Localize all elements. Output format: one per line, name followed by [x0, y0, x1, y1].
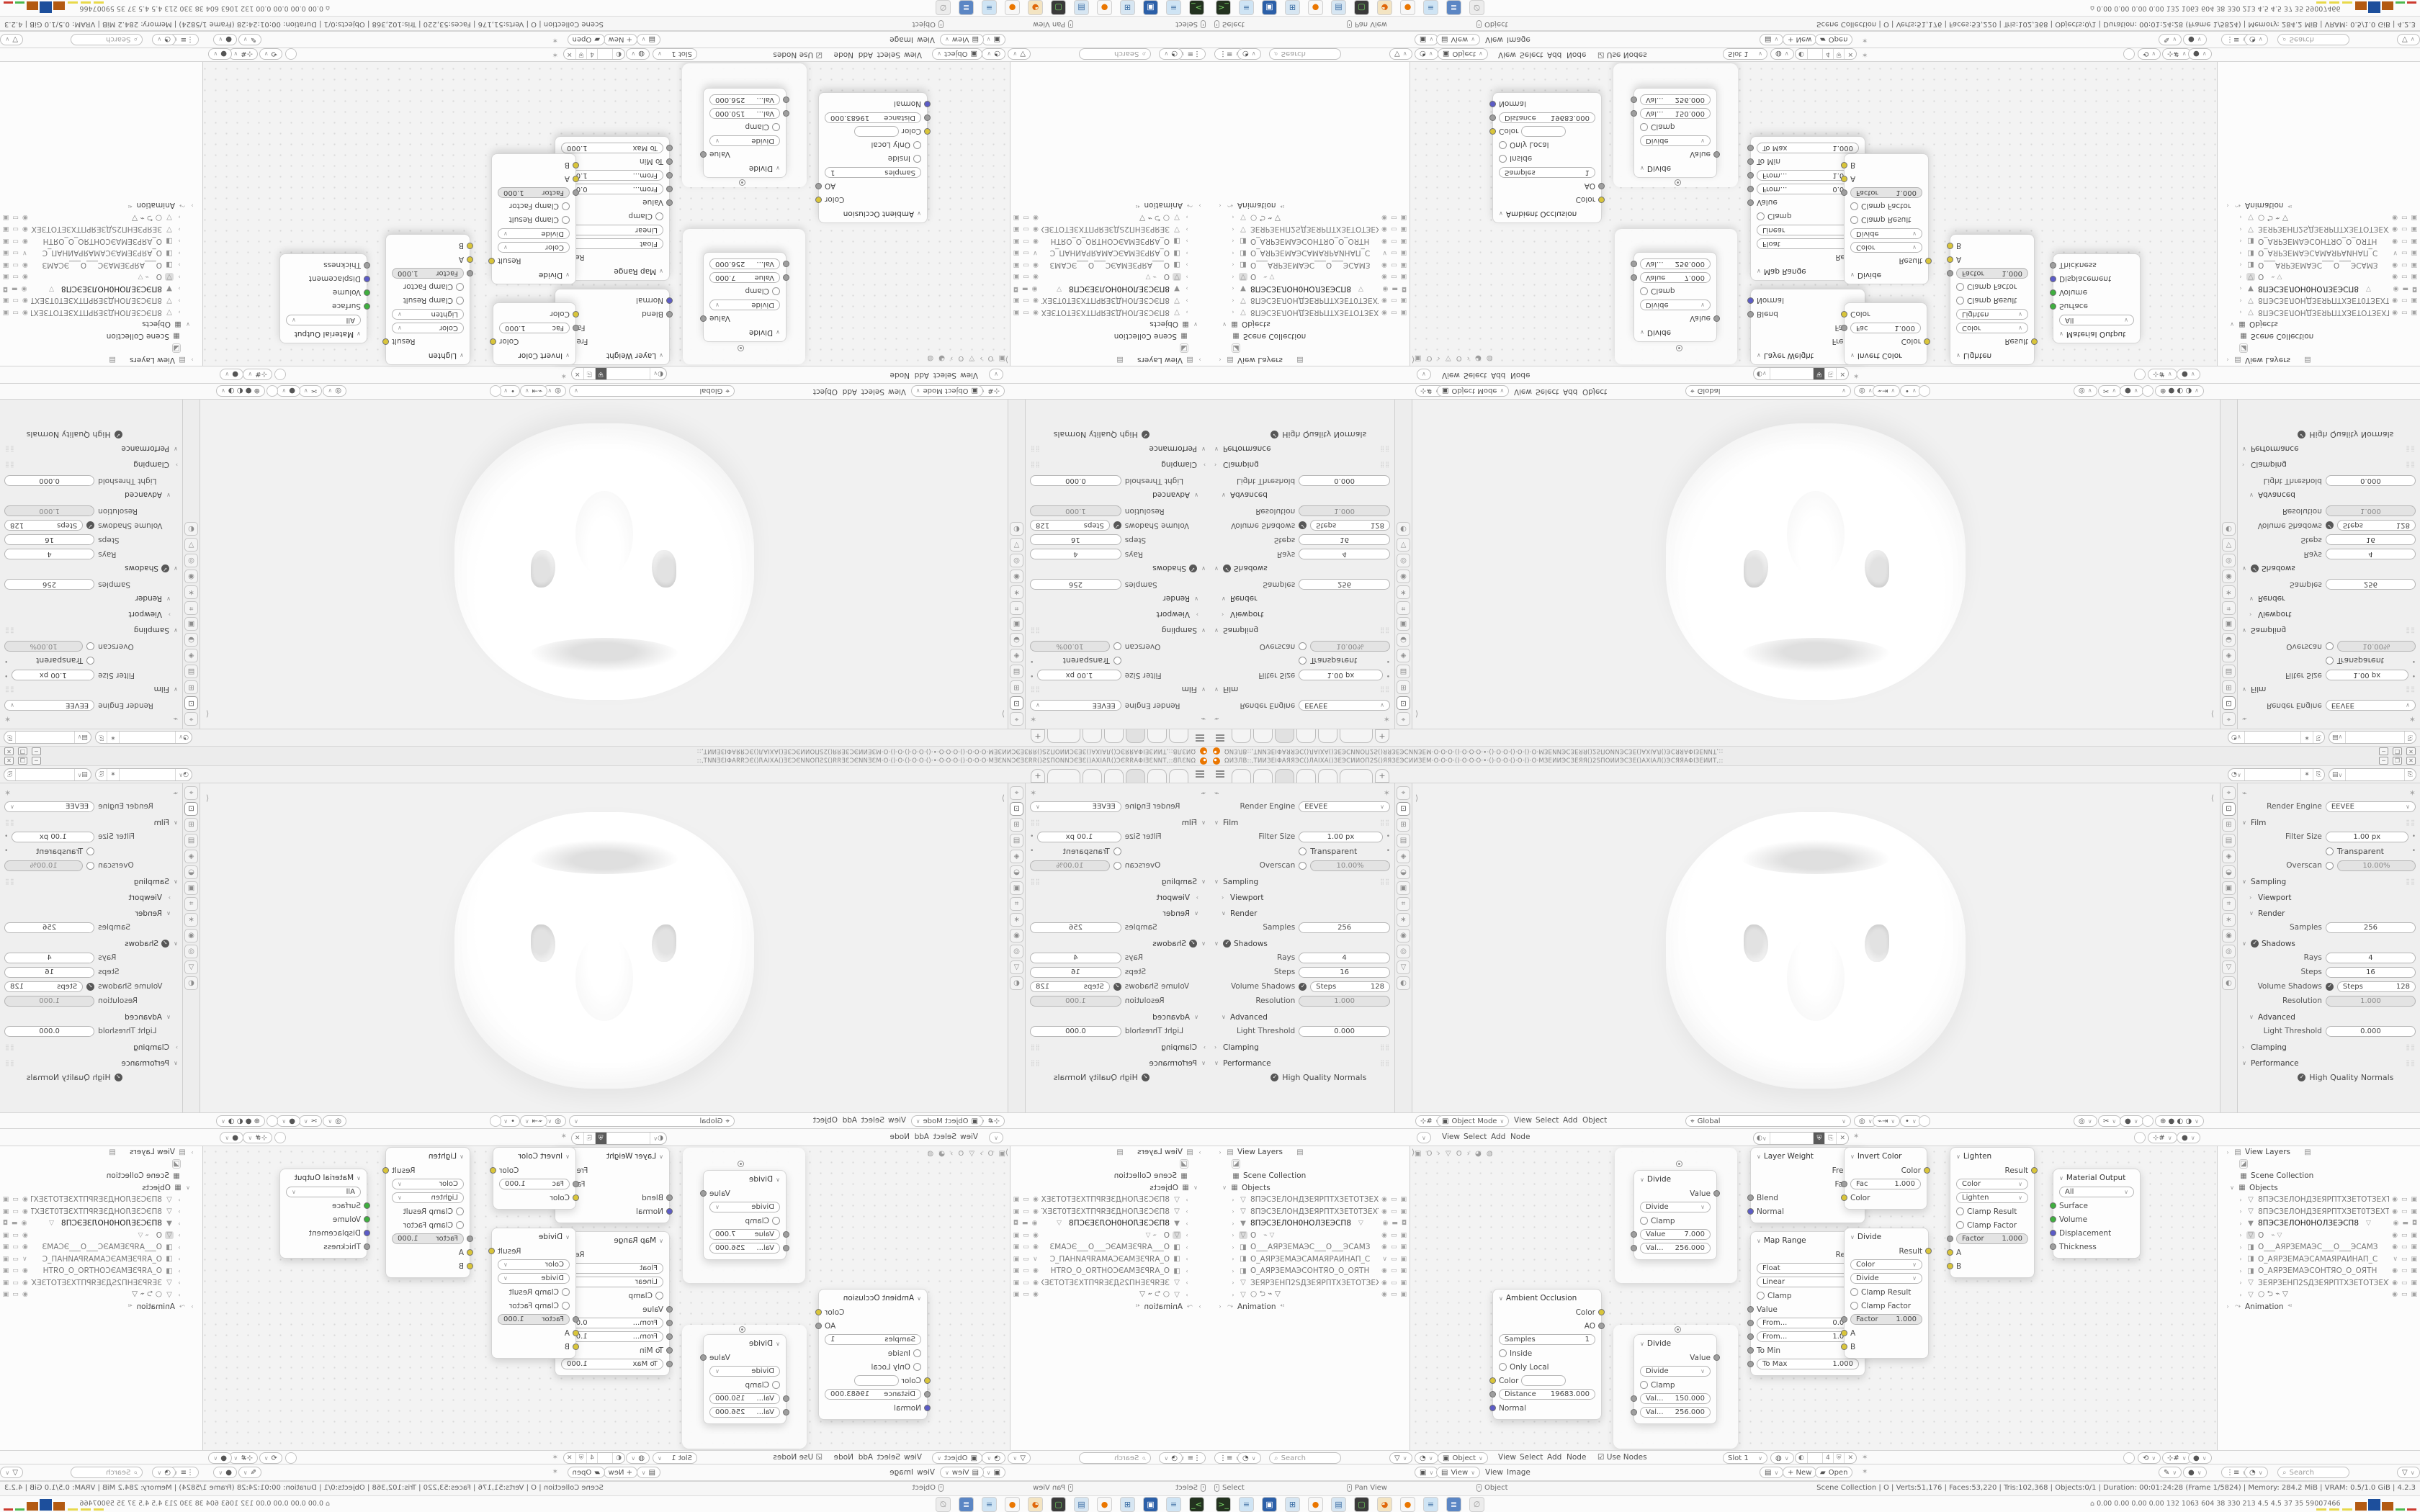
checkbox[interactable]	[1299, 657, 1307, 665]
input-socket[interactable]	[666, 1347, 673, 1354]
properties-tab-9[interactable]: ◉	[1397, 929, 1410, 942]
scene-selector[interactable]: ◔∨ ✶ ⎘	[95, 731, 192, 744]
checkbox[interactable]	[1299, 522, 1307, 530]
prop-field[interactable]: Steps128	[4, 981, 83, 992]
add-workspace-button[interactable]: +	[1031, 729, 1045, 743]
visibility-toggle-icon[interactable]: ▣	[3, 261, 9, 269]
render-preview-toggle[interactable]	[2142, 385, 2154, 397]
visibility-toggle-icon[interactable]: ▭	[13, 1291, 19, 1298]
orientation-dropdown[interactable]: ⌖Global∨	[569, 1115, 735, 1127]
prop-field[interactable]: 4	[2326, 549, 2416, 560]
properties-tab-4[interactable]: ◈	[1397, 850, 1410, 863]
visibility-toggle-icon[interactable]: ◉	[22, 1208, 28, 1215]
checkbox[interactable]	[1113, 983, 1121, 991]
node-value-field[interactable]: Val...150.000	[709, 1393, 780, 1404]
node-dropdown[interactable]: All∨	[2059, 315, 2134, 325]
view-mode-dropdown[interactable]: ▤View∨	[940, 34, 984, 45]
node-value-field[interactable]: Samples1	[1499, 1334, 1595, 1345]
outliner-object-row[interactable]: ›▽O⌁ ▽◉▭▣	[1210, 1230, 1410, 1242]
calculator-icon[interactable]: ⊞	[1120, 1497, 1135, 1512]
material-name-field[interactable]	[1808, 49, 1823, 59]
toolbar-expander-icon[interactable]: ⟩	[1412, 355, 1415, 364]
node-header[interactable]: ∨Material Output	[286, 327, 361, 341]
checkbox[interactable]	[2326, 522, 2334, 530]
node-header[interactable]: ∨Map Range	[561, 264, 663, 279]
editor-type-dropdown[interactable]: ∨	[989, 1132, 1003, 1143]
input-socket[interactable]	[924, 101, 931, 107]
fake-user-shield-icon[interactable]: ⛨	[595, 368, 606, 379]
prop-field[interactable]: 1.000	[1299, 506, 1390, 517]
view-mode-dropdown[interactable]: ▤View∨	[940, 1467, 984, 1478]
input-socket[interactable]	[1841, 189, 1847, 196]
output-socket[interactable]	[815, 183, 822, 189]
window-title-bar[interactable]: ΩИЗЛВ::,ТИИЗЕIΦАЯЯЭС()ЛАIХА()ЗЕЭСИИОП2S(…	[0, 756, 1210, 766]
properties-tab-5[interactable]: ◒	[2222, 633, 2236, 647]
properties-tab-0[interactable]: ⌖	[184, 786, 198, 800]
input-socket[interactable]	[666, 1306, 673, 1313]
visibility-toggle-icon[interactable]: ▭	[13, 309, 19, 316]
visibility-toggle-icon[interactable]: ▭	[1391, 309, 1397, 316]
image-browse-dropdown[interactable]: ▤∨	[637, 34, 660, 45]
menu-object[interactable]: Object	[1582, 1116, 1607, 1125]
visibility-toggle-icon[interactable]: ▭	[1391, 1267, 1397, 1274]
copy-icon[interactable]: ⎘	[2313, 769, 2324, 780]
visibility-toggle-icon[interactable]: ▭	[2401, 1256, 2408, 1263]
workspace-tab[interactable]	[1169, 729, 1188, 743]
menu-select[interactable]: Select	[1536, 387, 1559, 396]
visibility-toggle-icon[interactable]: ▭	[1023, 1232, 1030, 1239]
overlays-dropdown[interactable]: ●∨	[2177, 369, 2200, 380]
overlays-dropdown[interactable]: ●∨	[2188, 1452, 2212, 1464]
muted-speaker-icon[interactable]: ∅	[1469, 0, 1484, 15]
properties-tab-3[interactable]: ▤	[184, 834, 198, 847]
editor-type-dropdown[interactable]: ∨	[989, 369, 1003, 380]
panel-header-sampling[interactable]: ∨Sampling⣿⣿	[1030, 875, 1206, 888]
properties-tab-8[interactable]: ∗	[1397, 913, 1410, 927]
prop-field[interactable]: 16	[4, 967, 94, 978]
input-socket[interactable]	[2050, 1243, 2056, 1250]
outliner-view-layers[interactable]: ›▤View Layers▤	[0, 354, 202, 366]
outliner-render-icon[interactable]: ◪	[1010, 342, 1210, 354]
shading-mode-switch[interactable]: ⊕ ● ◐ ◑∨	[216, 1115, 265, 1127]
firefox-icon[interactable]: ◕	[1028, 1497, 1043, 1512]
outliner-animation[interactable]: ›⤳Animation⁴²	[1210, 1301, 1410, 1313]
input-socket[interactable]	[1841, 1344, 1847, 1350]
node-checkbox[interactable]	[1499, 1363, 1507, 1371]
outliner-animation[interactable]: ›⤳Animation⁴²	[0, 1301, 202, 1313]
output-socket[interactable]	[490, 1167, 496, 1174]
properties-tab-0[interactable]: ⌖	[1010, 712, 1023, 726]
editor-type-dropdown[interactable]: ◔∨	[982, 1452, 1005, 1464]
node-divide-a[interactable]: ∨DivideValueDivide∨ClampValue7.000Val...…	[703, 252, 786, 342]
properties-tab-4[interactable]: ◈	[184, 649, 198, 662]
node-material-output[interactable]: ∨Material OutputAll∨SurfaceVolumeDisplac…	[279, 1169, 367, 1259]
outliner-object-row[interactable]: ›◨O___АЯРЗЕМАЭС___О___ЭСАМЗ◉▭▣	[1010, 1241, 1210, 1254]
visibility-toggle-icon[interactable]: ▣	[3, 225, 9, 233]
node-checkbox[interactable]	[456, 1207, 464, 1215]
node-checkbox[interactable]	[562, 216, 570, 224]
visibility-toggle-icon[interactable]: ◉	[1383, 285, 1389, 292]
panel-header-film[interactable]: ∨Film⣿⣿	[1214, 816, 1390, 829]
overlays-dropdown[interactable]: ✂∨	[299, 385, 322, 397]
node-checkbox[interactable]	[772, 1217, 780, 1225]
copy-icon[interactable]: ⎘	[2313, 732, 2324, 743]
extra-toggle[interactable]	[490, 385, 501, 397]
outliner-view-layers[interactable]: ›▤View Layers▤	[1210, 354, 1410, 366]
properties-tab-12[interactable]: ◐	[184, 522, 198, 536]
unlink-icon[interactable]: ✕	[572, 1133, 583, 1144]
visibility-toggle-icon[interactable]: ▣	[3, 1279, 9, 1287]
node-header[interactable]: ∨Lighten	[1956, 348, 2028, 363]
output-socket[interactable]	[1598, 1309, 1605, 1315]
visibility-toggle-icon[interactable]: ▭	[1023, 249, 1030, 256]
checkbox[interactable]	[86, 983, 94, 991]
node-dropdown[interactable]: Float∨	[561, 238, 663, 249]
node-header[interactable]: ∨Material Output	[286, 1171, 361, 1185]
properties-tab-9[interactable]: ◉	[2222, 570, 2236, 583]
notes2-icon[interactable]: ≡	[1423, 0, 1438, 15]
node-value-field[interactable]: Distance19683.000	[825, 112, 921, 123]
prop-field[interactable]: 256	[4, 580, 94, 590]
editor-type-dropdown[interactable]: ◔∨	[1415, 48, 1438, 60]
input-socket[interactable]	[1747, 1361, 1754, 1367]
outliner-object-row[interactable]: ›▽8ПЭСЗЕЛОНДЗЕЯРПТХЗЕТОТЗЕХТ◉▭▣	[0, 1194, 202, 1206]
outliner-animation[interactable]: ›⤳Animation⁴²	[1010, 1301, 1210, 1313]
properties-tab-2[interactable]: ⊞	[1010, 818, 1023, 832]
visibility-toggle-icon[interactable]: ▣	[1013, 273, 1020, 280]
properties-tab-2[interactable]: ⊞	[1010, 680, 1023, 694]
outliner-object-row[interactable]: ›▽8ПЭСЗЕЛОНДЗЕЯРПТХЗЕТОТЗЕХТ◉▭▣	[0, 307, 202, 319]
visibility-toggle-icon[interactable]: ◉	[1033, 1267, 1039, 1274]
snap-dropdown[interactable]: ⊹#∨	[243, 1132, 272, 1143]
pin-icon[interactable]: ✶	[1853, 1133, 1859, 1140]
outliner-view-layers[interactable]: ›▤View Layers▤	[1010, 354, 1210, 366]
visibility-toggle-icon[interactable]: ▭	[2401, 309, 2408, 316]
shading-mode-switch[interactable]: ⊕ ● ◐ ◑∨	[2155, 385, 2204, 397]
material-name-field[interactable]	[606, 1133, 650, 1144]
properties-tab-10[interactable]: ◎	[1397, 554, 1410, 567]
properties-tab-7[interactable]: ⌗	[1010, 601, 1023, 615]
properties-tab-1[interactable]: ⊡	[184, 802, 198, 816]
mode-dropdown[interactable]: ▣Object Mode∨	[1437, 385, 1509, 397]
input-socket[interactable]	[364, 276, 370, 282]
outliner-scene-collection[interactable]: ▦Scene Collection	[2218, 1170, 2420, 1182]
panel-header-film[interactable]: ∨Film⣿⣿	[1030, 683, 1206, 696]
calculator-icon[interactable]: ⊞	[1285, 0, 1300, 15]
outliner-object-row[interactable]: ›◨O___АЯРЗЕМАЭС___О___ЭСАМЗ◉▭▣	[2218, 1241, 2420, 1254]
3d-viewport[interactable]: ⟩ ⟨	[203, 400, 1008, 729]
menu-view[interactable]: View	[1498, 1453, 1516, 1462]
properties-tab-6[interactable]: ▣	[2222, 881, 2236, 895]
outliner-object-row[interactable]: ›▽ЗЕЯРЗЕНП2SДЗЕЯРПТХЗЕТОТЗЕХТ◉▭▣	[0, 1277, 202, 1290]
panel-header-film[interactable]: ∨Film⣿⣿	[1030, 816, 1206, 829]
visibility-toggle-icon[interactable]: ▣	[1013, 1279, 1020, 1287]
properties-tab-3[interactable]: ▤	[1397, 665, 1410, 678]
properties-tab-3[interactable]: ▤	[1010, 665, 1023, 678]
input-socket[interactable]	[1841, 1194, 1847, 1201]
overlays-dropdown[interactable]: ●∨	[213, 1467, 237, 1478]
visibility-toggle-icon[interactable]: ▭	[13, 273, 19, 280]
visibility-toggle-icon[interactable]: ◉	[2392, 214, 2398, 221]
input-socket[interactable]	[1631, 96, 1637, 103]
outliner-object-row[interactable]: ›▽ЗЕЯРЗЕНП2SДЗЕЯРПТХЗЕТОТЗЕХТ◉▭▣	[1010, 223, 1210, 235]
xray-dropdown[interactable]: ●∨	[2120, 385, 2143, 397]
input-socket[interactable]	[1747, 199, 1754, 206]
blender2-icon[interactable]: ●	[1005, 0, 1020, 15]
slot-dropdown[interactable]: Slot 1∨	[653, 1452, 697, 1464]
output-socket[interactable]	[1713, 151, 1720, 158]
parent-toggle[interactable]	[274, 369, 286, 380]
visibility-toggle-icon[interactable]: ◉	[1032, 1220, 1038, 1227]
input-socket[interactable]	[666, 297, 673, 304]
node-checkbox[interactable]	[913, 141, 921, 149]
outliner-object-row[interactable]: ›▼8ПЭСЗЕЛОН0НОЛЗЕЭСП8▽◉▬◘	[1010, 1218, 1210, 1230]
output-socket[interactable]	[700, 151, 707, 158]
outliner-object-row[interactable]: ›▽O⌁ ▽◉▭▣	[2218, 1230, 2420, 1242]
prop-field[interactable]: 4	[4, 953, 94, 963]
visibility-toggle-icon[interactable]: ◉	[1033, 225, 1039, 233]
outliner-object-row[interactable]: ›▽8ПЭСЗЕЛОНДЗЕЯРПТХЗЕТОТЗЕХТ◉▭▣	[1010, 1194, 1210, 1206]
outliner-object-row[interactable]: ›◨O_АЯРЗЕМАЭСАМАЯРАИНАП_С∨▭▣	[0, 247, 202, 259]
fake-user-shield-icon[interactable]: ⛨	[1834, 49, 1845, 59]
properties-tab-6[interactable]: ▣	[1397, 617, 1410, 631]
menu-select[interactable]: Select	[933, 371, 956, 379]
render-engine-dropdown[interactable]: EEVEE∨	[4, 701, 94, 711]
restore-button[interactable]: ❐	[2393, 757, 2402, 765]
input-socket[interactable]	[573, 1194, 579, 1201]
node-value-field[interactable]: To Max1.000	[1757, 143, 1859, 153]
properties-tab-6[interactable]: ▣	[2222, 617, 2236, 631]
input-socket[interactable]	[1841, 1181, 1847, 1187]
save-icon[interactable]: ▣	[1143, 0, 1158, 15]
panel-header-clamping[interactable]: ›Clamping⣿⣿	[1030, 1040, 1206, 1054]
visibility-toggle-icon[interactable]: ▭	[1391, 1279, 1397, 1287]
toolbar-expander-icon[interactable]: ⟩	[1002, 793, 1005, 803]
visibility-toggle-icon[interactable]: ▭	[13, 1232, 19, 1239]
visibility-toggle-icon[interactable]: ▣	[2411, 261, 2417, 269]
pin-icon[interactable]: ✶	[561, 372, 567, 379]
fake-user-shield-icon[interactable]: ⛨	[1834, 1453, 1845, 1463]
outliner-mode-dropdown[interactable]: ◔∨	[1159, 48, 1183, 60]
mode-dropdown[interactable]: ▣Object Mode∨	[911, 385, 983, 397]
visibility-toggle-icon[interactable]: ◉	[22, 1279, 28, 1287]
menu-select[interactable]: Select	[1520, 1453, 1543, 1462]
properties-tab-8[interactable]: ∗	[1010, 913, 1023, 927]
visibility-toggle-icon[interactable]: ▭	[2401, 225, 2408, 233]
checkbox[interactable]	[86, 862, 94, 870]
snap-dropdown[interactable]: ⊹#∨	[228, 1452, 258, 1464]
outliner-scene-collection[interactable]: ▦Scene Collection	[0, 330, 202, 343]
render-engine-dropdown[interactable]: EEVEE∨	[1299, 801, 1390, 812]
input-socket[interactable]	[1631, 261, 1637, 267]
node-checkbox[interactable]	[456, 1221, 464, 1229]
prop-field[interactable]: 10.00%	[1030, 860, 1110, 871]
outliner-object-row[interactable]: ›◨O_АЯРЗЕМАЭСОНТЯО_О_ОЯТН◉▭▣	[1010, 235, 1210, 248]
material-name-field[interactable]	[1770, 1133, 1814, 1144]
node-divide-mix[interactable]: ∨DivideResultColor∨Divide∨Clamp ResultCl…	[1844, 1228, 1929, 1359]
panel-header-film[interactable]: ∨Film⣿⣿	[2242, 683, 2416, 696]
node-header[interactable]: ∨Material Output	[2059, 327, 2134, 341]
shading-mode-switch[interactable]: ⊕ ● ◐ ◑∨	[216, 385, 265, 397]
visibility-toggle-icon[interactable]: ◉	[22, 225, 28, 233]
copy-icon[interactable]: ⎘	[1825, 1133, 1837, 1144]
panel-header-shadows[interactable]: ∨Shadows	[2242, 562, 2416, 575]
visibility-toggle-icon[interactable]: ▭	[13, 238, 19, 245]
panel-header-shadows[interactable]: ∨Shadows	[2242, 937, 2416, 950]
save-icon[interactable]: ▣	[1262, 0, 1277, 15]
input-socket[interactable]	[573, 325, 579, 331]
pin-icon[interactable]: ✶	[1853, 372, 1859, 379]
node-dropdown[interactable]: Lighten∨	[1956, 1192, 2028, 1203]
node-invert-color[interactable]: ∨Invert ColorColorFac1.000Color	[1844, 1147, 1927, 1210]
visibility-toggle-icon[interactable]: ▣	[1400, 261, 1407, 269]
outliner-object-row[interactable]: ›▽8ПЭСЗЕЛОНДЗЕЯРПТХЗЕТ0ТЗЕХТ◉▭▣	[2218, 294, 2420, 307]
input-socket[interactable]	[1747, 158, 1754, 165]
node-divide-a[interactable]: ∨DivideValueDivide∨ClampValue7.000Val...…	[1633, 252, 1717, 342]
menu-node[interactable]: Node	[890, 371, 910, 379]
outliner-object-row[interactable]: ›▽8ПЭСЗЕЛОНДЗЕЯРПТХЗЕТОТЗЕХТ◉▭▣	[2218, 307, 2420, 319]
prop-field[interactable]: Steps128	[1030, 981, 1110, 992]
workspace-tab[interactable]	[1147, 769, 1167, 783]
panel-header-viewport[interactable]: ›Viewport	[1030, 608, 1206, 621]
outliner-object-row[interactable]: ›◨O_АЯРЗЕМАЭСОНТЯО_О_ОЯТН◉▭▣	[1010, 1265, 1210, 1277]
visibility-toggle-icon[interactable]: ◉	[1381, 309, 1387, 316]
input-socket[interactable]	[666, 158, 673, 165]
render-engine-dropdown[interactable]: EEVEE∨	[4, 801, 94, 812]
material-selector[interactable]: ◐∨ ⛨ ⎘ ✕	[1753, 367, 1849, 380]
color-field[interactable]	[1521, 1375, 1566, 1386]
properties-tab-5[interactable]: ◒	[1010, 865, 1023, 879]
visibility-toggle-icon[interactable]: ▭	[2401, 214, 2408, 221]
blender-icon[interactable]: ●	[1097, 1497, 1112, 1512]
node-header[interactable]: ∨Divide	[1640, 1172, 1711, 1187]
xray-dropdown[interactable]: ●∨	[2120, 1115, 2143, 1127]
menu-hamburger-icon[interactable]	[1196, 734, 1204, 742]
add-workspace-button[interactable]: +	[1375, 769, 1389, 783]
node-header[interactable]: ∨Layer Weight	[561, 1149, 663, 1164]
prop-field[interactable]: Steps128	[1310, 521, 1390, 531]
outliner-render-icon[interactable]: ◪	[0, 1158, 202, 1171]
visibility-toggle-icon[interactable]: ▭	[1391, 214, 1397, 221]
documents-icon[interactable]: ≣	[1446, 0, 1461, 15]
node-value-field[interactable]: Fac1.000	[1850, 323, 1921, 333]
node-value-field[interactable]: Value7.000	[1640, 272, 1711, 283]
properties-tab-2[interactable]: ⊞	[184, 680, 198, 694]
properties-tab-4[interactable]: ◈	[1397, 649, 1410, 662]
visibility-toggle-icon[interactable]: ◉	[2392, 273, 2398, 280]
menu-add[interactable]: Add	[859, 50, 873, 59]
menu-add[interactable]: Add	[1491, 1133, 1505, 1141]
workspace-tab[interactable]	[1296, 729, 1316, 743]
prop-field[interactable]: 256	[2326, 922, 2416, 933]
outliner-object-row[interactable]: ›▽O⌁ ▽◉▭▣	[0, 1230, 202, 1242]
visibility-toggle-icon[interactable]: ◉	[1033, 1232, 1039, 1239]
outliner-scene-collection[interactable]: ▦Scene Collection	[1010, 1170, 1210, 1182]
snap-dropdown[interactable]: ⊹#∨	[2162, 48, 2192, 60]
checkbox[interactable]	[1113, 847, 1121, 855]
outliner-filter-dropdown[interactable]: ▽∨	[0, 1467, 23, 1478]
prop-field[interactable]: 10.00%	[2337, 860, 2416, 871]
sidebar-expander-icon[interactable]: ⟨	[2211, 709, 2214, 719]
panel-header-film[interactable]: ∨Film⣿⣿	[4, 816, 178, 829]
unlink-icon[interactable]: ✕	[572, 368, 583, 379]
outliner-mode-dropdown[interactable]: ◔∨	[1237, 1452, 1261, 1464]
input-socket[interactable]	[1747, 1306, 1754, 1313]
node-value-field[interactable]: Factor1.000	[498, 187, 570, 198]
visibility-toggle-icon[interactable]: ∨	[1033, 1256, 1038, 1263]
overlays-dropdown[interactable]: ●∨	[220, 1132, 243, 1143]
outliner-scene-collection[interactable]: ▦Scene Collection	[1010, 330, 1210, 343]
properties-tab-7[interactable]: ⌗	[1397, 601, 1410, 615]
visibility-toggle-icon[interactable]: ◉	[22, 273, 28, 280]
visibility-toggle-icon[interactable]: ◉	[1033, 1279, 1039, 1287]
panel-header-shadows[interactable]: ∨Shadows	[1214, 937, 1390, 950]
node-checkbox[interactable]	[913, 1349, 921, 1357]
checkbox[interactable]	[2326, 862, 2334, 870]
visibility-toggle-icon[interactable]: ▭	[13, 249, 19, 256]
panel-header-performance[interactable]: ∨Performance⣿⣿	[1030, 1056, 1206, 1070]
node-divide-b[interactable]: ∨DivideValueDivide∨ClampVal...150.000Val…	[703, 1334, 786, 1424]
new-image-button[interactable]: + New	[604, 1467, 637, 1478]
checkbox[interactable]	[2298, 1074, 2305, 1081]
visibility-toggle-icon[interactable]: ∨	[2393, 249, 2398, 256]
node-checkbox[interactable]	[1956, 1221, 1964, 1229]
properties-tab-2[interactable]: ⊞	[2222, 818, 2236, 832]
node-checkbox[interactable]	[655, 1292, 663, 1300]
new-image-button[interactable]: + New	[1783, 34, 1816, 45]
node-value-field[interactable]: Factor1.000	[1956, 268, 2028, 279]
menu-select[interactable]: Select	[877, 1453, 900, 1462]
image-browse-dropdown[interactable]: ▤∨	[1760, 34, 1783, 45]
outliner-search-input[interactable]: ⌕ Search	[2277, 34, 2349, 45]
snap-dropdown[interactable]: ⌁⇥∨	[520, 385, 547, 397]
mode-dropdown[interactable]: ▣Object∨	[932, 48, 982, 60]
node-checkbox[interactable]	[562, 202, 570, 210]
unlink-icon[interactable]: ✕	[564, 49, 575, 59]
outliner-search-input[interactable]: ⌕ Search	[1079, 1452, 1151, 1464]
editor-type-dropdown[interactable]: ◔∨	[982, 48, 1005, 60]
input-socket[interactable]	[1747, 1320, 1754, 1326]
outliner-object-row[interactable]: ›▽O⌁ ▽◉▭▣	[2218, 271, 2420, 283]
outliner-object-row[interactable]: ›◨O_АЯРЗЕМАЭСОНТЯО_О_ОЯТН◉▭▣	[2218, 235, 2420, 248]
unlink-icon[interactable]: ✕	[564, 1453, 575, 1463]
outliner-render-icon[interactable]: ◪	[1210, 1158, 1410, 1171]
visibility-toggle-icon[interactable]: ▣	[3, 238, 9, 245]
output-socket[interactable]	[1924, 1167, 1930, 1174]
panel-header-render[interactable]: ∨Render	[2242, 592, 2416, 606]
outliner-object-row[interactable]: ›◨O___АЯРЗЕМАЭС___О___ЭСАМЗ◉▭▣	[1210, 1241, 1410, 1254]
output-socket[interactable]	[1713, 315, 1720, 322]
checkbox[interactable]	[115, 431, 122, 439]
visibility-toggle-icon[interactable]: ▭	[2401, 1243, 2408, 1251]
node-lighten-mix[interactable]: ∨LightenResultColor∨Lighten∨Clamp Result…	[385, 1147, 470, 1278]
mode-dropdown[interactable]: ▣Object Mode∨	[911, 1115, 983, 1127]
workspace-tab[interactable]	[1318, 729, 1337, 743]
properties-tab-11[interactable]: ▽	[2222, 960, 2236, 974]
input-socket[interactable]	[467, 243, 473, 249]
node-dropdown[interactable]: Divide∨	[1850, 228, 1922, 239]
material-name-field[interactable]	[606, 368, 650, 379]
node-value-field[interactable]: Factor1.000	[498, 1314, 570, 1325]
visibility-toggle-icon[interactable]: ◉	[1381, 1267, 1387, 1274]
node-header[interactable]: ∨Invert Color	[1850, 348, 1921, 363]
properties-tab-4[interactable]: ◈	[1010, 850, 1023, 863]
outliner-object-row[interactable]: ›▼8ПЭСЗЕЛОН0НОЛЗЕЭСП8▽◉▬◘	[0, 1218, 202, 1230]
visibility-toggle-icon[interactable]: ◉	[22, 261, 28, 269]
outliner-filter-dropdown[interactable]: ▽∨	[0, 34, 23, 45]
pin-icon[interactable]: ✶	[552, 1468, 558, 1476]
snap-dropdown[interactable]: ⌁⇥∨	[520, 1115, 547, 1127]
